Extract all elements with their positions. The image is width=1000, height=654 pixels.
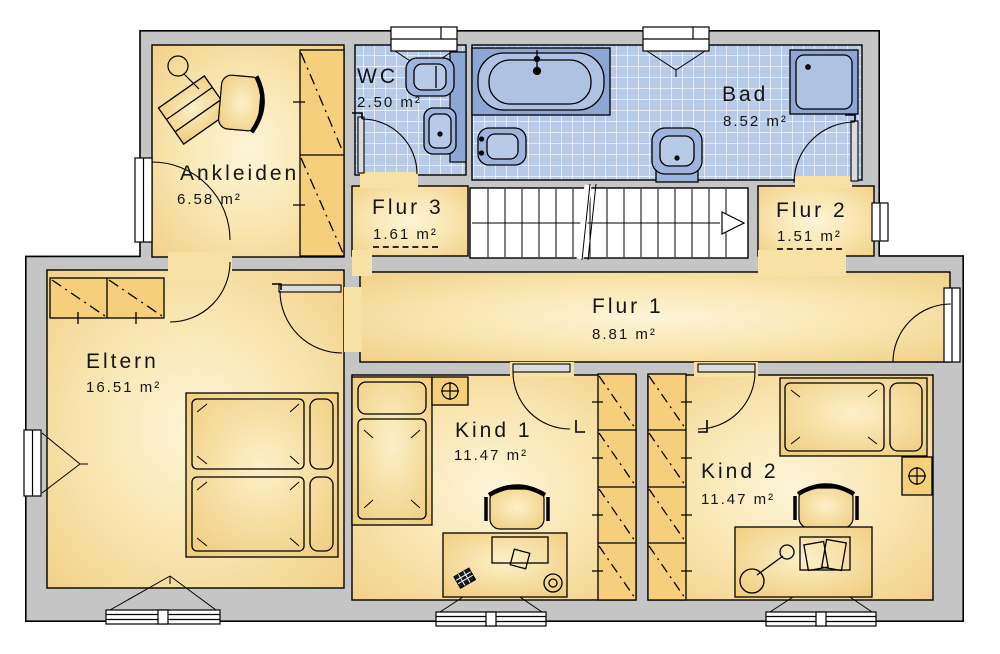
room-area-flur1: 8.81 m² (592, 327, 657, 342)
room-label-flur2: Flur 2 (776, 200, 848, 221)
chair-kind2 (795, 486, 857, 529)
window-flur2-right (872, 203, 888, 241)
bed-kind2 (780, 378, 927, 456)
roof-window-wc (391, 27, 457, 51)
window-flur1-right (944, 288, 960, 362)
chair-kind1 (486, 487, 548, 530)
door-leaf-eltern (279, 285, 341, 292)
desk-kind1 (443, 533, 567, 597)
toilet-wc-icon (406, 58, 454, 96)
room-label-kind1: Kind 1 (455, 420, 533, 441)
floor-plan-upper-storey: Ankleiden 6.58 m² WC 2.50 m² Bad 8.52 m²… (0, 0, 1000, 654)
room-area-kind2: 11.47 m² (701, 492, 775, 507)
bathtub-icon (472, 48, 610, 115)
room-label-flur3: Flur 3 (372, 197, 444, 218)
window-eltern-left (24, 430, 41, 496)
wardrobe-kind1 (592, 374, 636, 600)
room-label-flur1: Flur 1 (592, 296, 664, 317)
room-label-bad: Bad (722, 84, 768, 105)
room-label-eltern: Eltern (86, 351, 159, 372)
room-label-kind2: Kind 2 (701, 461, 779, 482)
room-area-flur2: 1.51 m² (777, 229, 842, 250)
room-area-wc: 2.50 m² (357, 95, 422, 110)
window-eltern-bottom (106, 610, 220, 624)
room-area-kind1: 11.47 m² (454, 448, 528, 463)
sink-wc-icon (424, 108, 456, 154)
door-leaf-bad (851, 121, 858, 181)
desk-kind2 (735, 527, 872, 597)
door-leaf-wc (358, 117, 364, 173)
chair-ankleiden (218, 73, 265, 132)
room-area-bad: 8.52 m² (723, 114, 788, 129)
floor-plan-drawing (0, 0, 1000, 654)
door-leaf-kind2 (698, 364, 755, 372)
wardrobe-ankleiden (293, 50, 344, 256)
room-area-eltern: 16.51 m² (86, 380, 161, 395)
bed-kind1 (352, 377, 432, 525)
roof-window-bad (643, 27, 709, 51)
window-ankleiden-left (135, 158, 152, 242)
room-area-flur3: 1.61 m² (373, 227, 438, 248)
sink-bad-icon (652, 128, 702, 182)
room-area-ankleiden: 6.58 m² (177, 192, 242, 207)
shower-icon (790, 50, 858, 114)
door-leaf-kind1 (513, 364, 570, 372)
bed-eltern (186, 393, 338, 557)
window-kind1-bottom (436, 612, 546, 626)
room-label-wc: WC (357, 66, 398, 87)
wardrobe-kind2 (648, 374, 692, 600)
room-label-ankleiden: Ankleiden (180, 163, 299, 184)
wardrobe-eltern (50, 278, 164, 324)
toilet-bad-icon (478, 128, 526, 165)
window-kind2-bottom (766, 612, 876, 626)
